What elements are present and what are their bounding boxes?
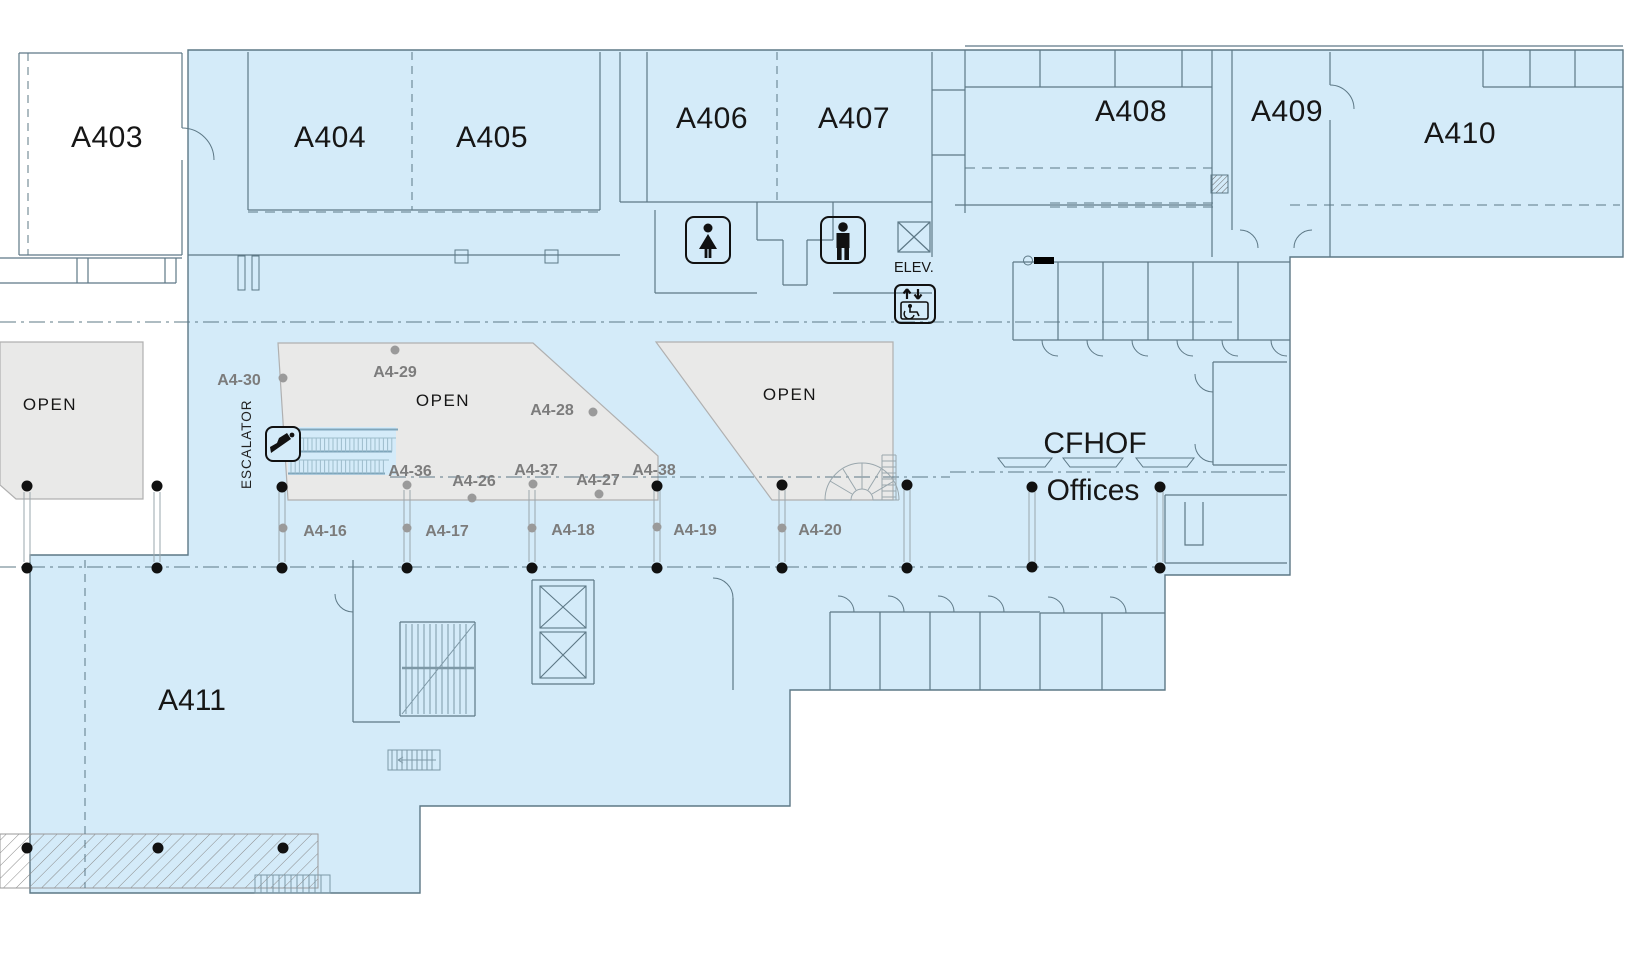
column-dot-gray [589, 408, 598, 417]
column-dot-black [278, 843, 289, 854]
column-dot-black [152, 481, 163, 492]
column-grid-label: A4-27 [576, 472, 620, 489]
open-atrium-areas [0, 342, 893, 500]
column-dot-gray [279, 524, 288, 533]
column-grid-label: A4-18 [551, 522, 595, 539]
room-label-a407: A407 [818, 102, 890, 135]
column-dot-black [652, 481, 663, 492]
column-dot-black [153, 843, 164, 854]
column-dot-gray [595, 490, 604, 499]
escalator-label: ESCALATOR [239, 399, 254, 489]
column-dot-black [652, 563, 663, 574]
column-dot-black [1027, 482, 1038, 493]
column-grid-label: A4-17 [425, 523, 469, 540]
column-grid-label: A4-19 [673, 522, 717, 539]
room-label-a406: A406 [676, 102, 748, 135]
hatched-wall-box [1211, 175, 1228, 193]
elevator-label: ELEV. [894, 260, 934, 276]
room-label-a409: A409 [1251, 95, 1323, 128]
column-grid-label: A4-36 [388, 463, 432, 480]
column-dot-black [152, 563, 163, 574]
room-label-a403: A403 [71, 121, 143, 154]
room-label-a410: A410 [1424, 117, 1496, 150]
column-dot-black [777, 480, 788, 491]
room-label-a408: A408 [1095, 95, 1167, 128]
column-dot-black [277, 563, 288, 574]
column-dot-black [902, 480, 913, 491]
column-dot-black [777, 563, 788, 574]
column-dot-black [277, 482, 288, 493]
column-dot-gray [778, 524, 787, 533]
column-grid-label: A4-26 [452, 473, 496, 490]
column-grid-label: A4-38 [632, 462, 676, 479]
column-dot-black [902, 563, 913, 574]
column-dot-black [22, 563, 33, 574]
column-grid-label: A4-20 [798, 522, 842, 539]
column-dot-gray [468, 494, 477, 503]
column-grid-label: A4-28 [530, 402, 574, 419]
door-closer-bar [1034, 257, 1054, 264]
column-dot-black [1027, 562, 1038, 573]
column-dot-gray [403, 524, 412, 533]
column [24, 492, 30, 562]
column-dot-gray [403, 481, 412, 490]
column-dot-gray [279, 374, 288, 383]
room-label-a405: A405 [456, 121, 528, 154]
hatched-slab-band [0, 834, 318, 888]
column-grid-label: A4-37 [514, 462, 558, 479]
column-dot-black [527, 563, 538, 574]
column-dot-gray [529, 480, 538, 489]
open-area-label: OPEN [763, 385, 817, 404]
escalator-icon [266, 427, 300, 461]
escalator [288, 427, 398, 475]
column-grid-label: A4-16 [303, 523, 347, 540]
column-dot-black [1155, 563, 1166, 574]
room-label-a404: A404 [294, 121, 366, 154]
cfhof-label-line1: CFHOF [1043, 427, 1146, 460]
column-dot-black [22, 843, 33, 854]
column-grid-label: A4-29 [373, 364, 417, 381]
column-dot-gray [653, 523, 662, 532]
column-dot-black [1155, 482, 1166, 493]
open-area-west [0, 342, 143, 499]
cfhof-label-line2: Offices [1047, 474, 1140, 507]
column [154, 492, 160, 562]
column-dot-gray [528, 524, 537, 533]
column-dot-black [22, 481, 33, 492]
floor-plan: A403A404A405A406A407A408A409A410A411OPEN… [0, 0, 1651, 960]
open-area-label: OPEN [23, 395, 77, 414]
column-grid-label: A4-30 [217, 372, 261, 389]
column-dot-gray [391, 346, 400, 355]
open-area-label: OPEN [416, 391, 470, 410]
room-label-a411: A411 [158, 684, 226, 717]
column-dot-black [402, 563, 413, 574]
